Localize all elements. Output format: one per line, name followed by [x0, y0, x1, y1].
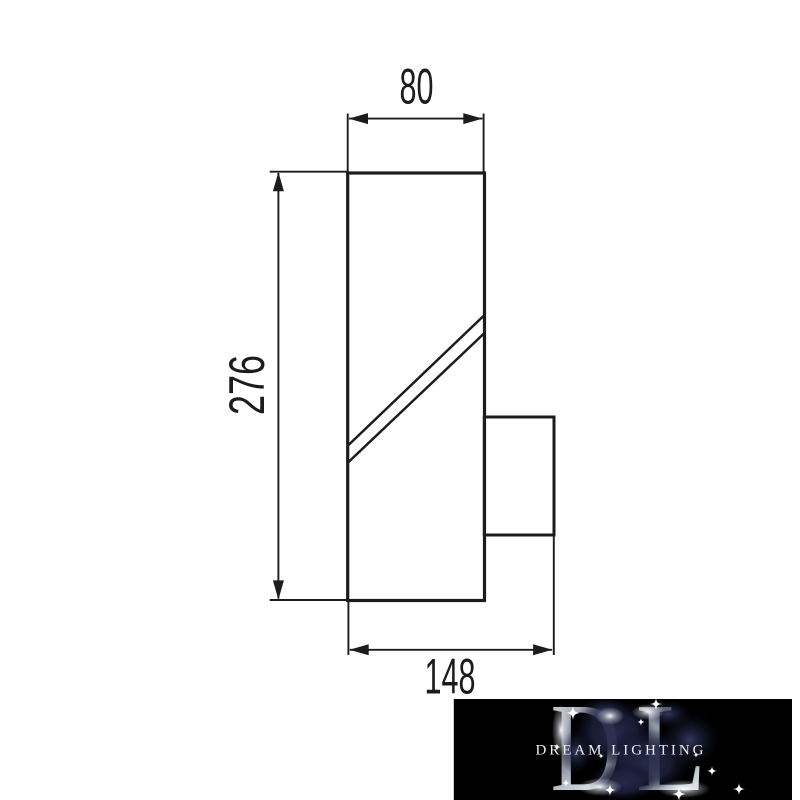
svg-text:DREAM LIGHTING: DREAM LIGHTING: [536, 743, 708, 759]
svg-text:148: 148: [425, 649, 476, 705]
svg-text:276: 276: [219, 355, 275, 415]
svg-text:80: 80: [400, 59, 434, 115]
